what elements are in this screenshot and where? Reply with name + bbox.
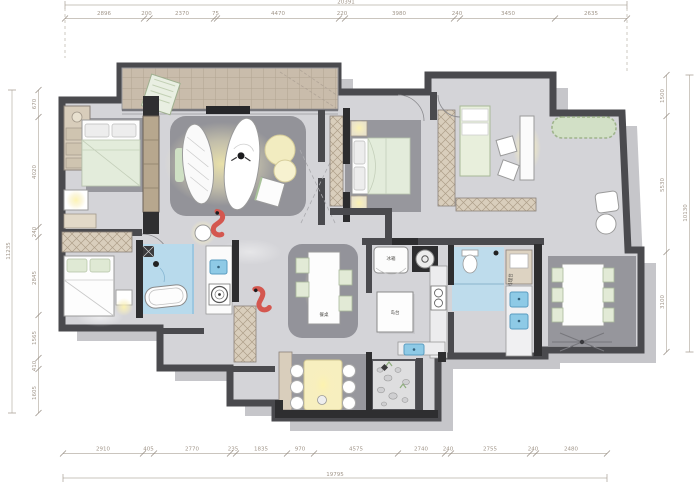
dim: 2896 <box>97 11 111 17</box>
stove <box>431 286 446 310</box>
dimension-labels-left: 11235 670 4020 240 2845 1565 410 1605 <box>6 98 38 400</box>
closet <box>330 116 343 206</box>
dim: 4020 <box>32 165 38 179</box>
dimension-labels-top: 20391 2896 200 2370 75 4470 220 3980 240… <box>97 0 598 17</box>
divider-cabinet <box>143 96 159 234</box>
dim: 240 <box>443 447 454 453</box>
desk <box>520 116 534 180</box>
prep-counter-label: 料理台 <box>507 273 514 287</box>
dim: 240 <box>32 226 38 237</box>
fridge-label: 冰箱 <box>387 255 396 262</box>
dining-table <box>562 264 604 326</box>
toilet <box>462 250 478 273</box>
chair <box>296 282 309 297</box>
dim: 75 <box>212 11 219 17</box>
dim: 4470 <box>271 11 285 17</box>
dining-room <box>548 256 636 351</box>
dim: 4575 <box>349 447 363 453</box>
dim: 405 <box>143 447 154 453</box>
dim: 3100 <box>660 295 666 309</box>
shower-head <box>494 251 499 256</box>
dim: 3980 <box>392 11 406 17</box>
pouf-small <box>274 160 296 182</box>
dresser <box>64 214 96 228</box>
dim-left-total: 11235 <box>6 242 12 260</box>
dimension-labels-bottom: 19795 2910 405 2770 235 1835 970 4575 27… <box>96 447 578 479</box>
dim: 1565 <box>32 331 38 345</box>
dim: 2910 <box>96 447 110 453</box>
fridge: 冰箱 <box>374 247 408 274</box>
kitchen-sink <box>404 344 424 355</box>
daybed <box>460 106 490 176</box>
dim: 410 <box>32 360 38 371</box>
dim: 2755 <box>483 447 497 453</box>
dim-bottom-total: 19795 <box>326 472 344 478</box>
dim-right-total: 10130 <box>683 204 689 222</box>
laundry-sink <box>210 260 227 274</box>
living-dining-set: 餐桌 <box>288 244 358 338</box>
floor-plan-drawing: 冰箱 岛台 <box>0 0 700 485</box>
dim: 3450 <box>501 11 515 17</box>
dim-top-total: 20391 <box>337 0 355 6</box>
chair <box>339 296 352 311</box>
lounge-room <box>164 106 325 225</box>
bathtub <box>144 284 188 309</box>
wall <box>330 208 388 215</box>
cabinet <box>456 198 536 211</box>
dim: 235 <box>228 447 239 453</box>
dim: 2480 <box>564 447 578 453</box>
round-table <box>195 225 211 241</box>
cabinet <box>234 306 256 362</box>
dim: 2770 <box>185 447 199 453</box>
washing-machine <box>209 284 230 305</box>
prep-counter-strip: 料理台 <box>506 244 542 356</box>
dim: 220 <box>337 11 348 17</box>
chair-round <box>596 214 616 234</box>
bed <box>64 256 114 316</box>
dim: 670 <box>32 98 38 109</box>
kitchen-island: 岛台 <box>377 292 415 334</box>
dim: 240 <box>452 11 463 17</box>
bathroom-1 <box>136 240 194 318</box>
dim: 2845 <box>32 271 38 285</box>
dim: 1835 <box>254 447 268 453</box>
pouf-large <box>265 135 295 165</box>
chair <box>296 258 309 273</box>
wardrobe <box>438 110 455 206</box>
wall-lintel <box>206 106 250 114</box>
dim: 2740 <box>414 447 428 453</box>
bed <box>352 138 410 194</box>
wall <box>362 238 544 245</box>
dim: 2635 <box>584 11 598 17</box>
dim: 5530 <box>660 178 666 192</box>
wardrobe <box>62 232 132 252</box>
dim: 1605 <box>32 386 38 400</box>
floor-plan-canvas: 冰箱 岛台 <box>0 0 700 485</box>
dim: 2370 <box>175 11 189 17</box>
dimension-labels-right: 10130 1500 5530 3100 <box>660 89 689 309</box>
dim: 970 <box>295 447 306 453</box>
lamp-glow <box>66 190 86 210</box>
dim: 240 <box>528 447 539 453</box>
table-label: 餐桌 <box>320 311 329 318</box>
teapot <box>318 396 327 405</box>
dim: 1500 <box>660 89 666 103</box>
chair <box>339 270 352 285</box>
chair <box>595 191 620 214</box>
shower-head <box>153 261 159 267</box>
dim: 200 <box>141 11 152 17</box>
island-label: 岛台 <box>391 309 400 316</box>
tea-room <box>275 352 438 418</box>
pebble-court <box>372 360 416 410</box>
hedge <box>552 117 616 138</box>
bed <box>82 120 140 186</box>
